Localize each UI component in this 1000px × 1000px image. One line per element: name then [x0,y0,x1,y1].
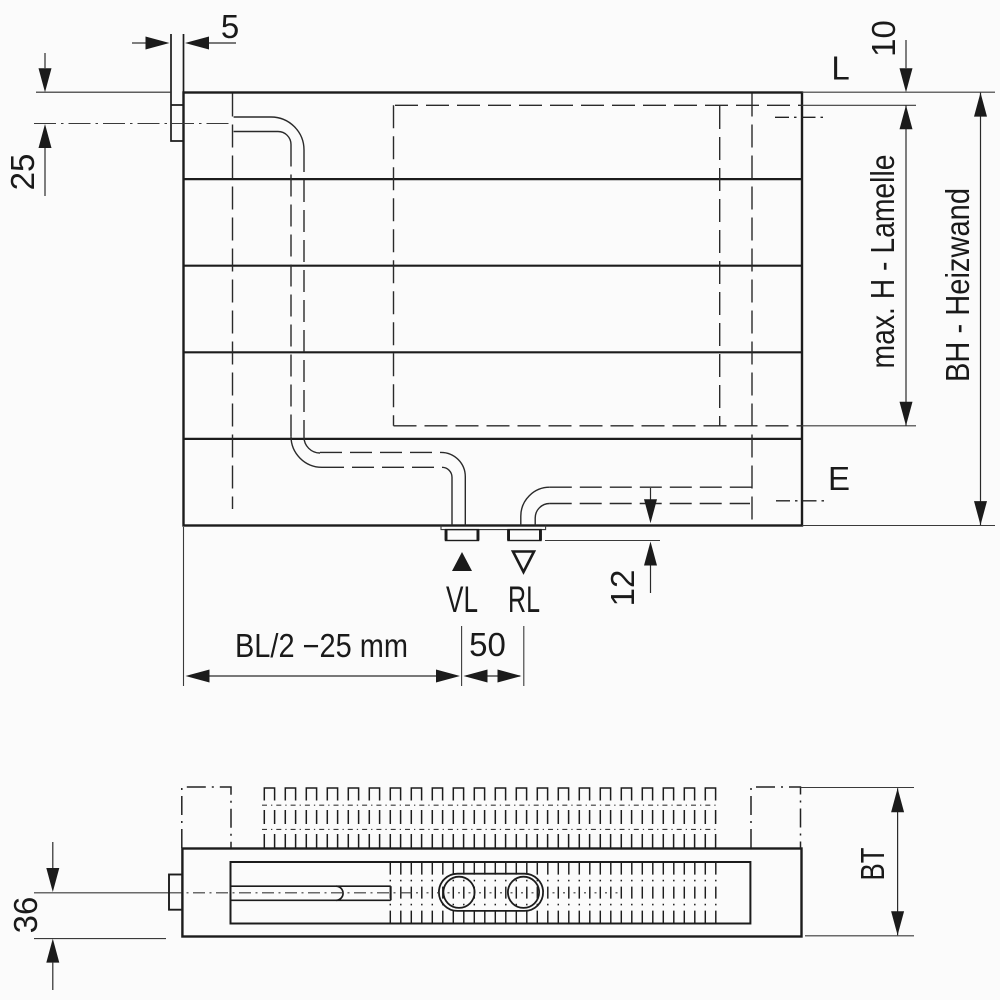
svg-text:50: 50 [469,626,506,663]
svg-text:25: 25 [4,154,41,191]
svg-text:5: 5 [221,8,239,45]
svg-text:max. H - Lamelle: max. H - Lamelle [864,155,901,369]
svg-text:L: L [831,50,849,87]
svg-text:VL: VL [446,579,478,620]
svg-text:BH - Heizwand: BH - Heizwand [939,188,976,382]
svg-text:BT: BT [854,848,891,881]
svg-text:12: 12 [604,570,641,607]
svg-text:10: 10 [865,20,902,57]
svg-text:BL/2 −25 mm: BL/2 −25 mm [235,627,408,664]
svg-text:E: E [828,460,850,497]
svg-text:RL: RL [508,579,540,620]
svg-text:36: 36 [7,897,44,934]
